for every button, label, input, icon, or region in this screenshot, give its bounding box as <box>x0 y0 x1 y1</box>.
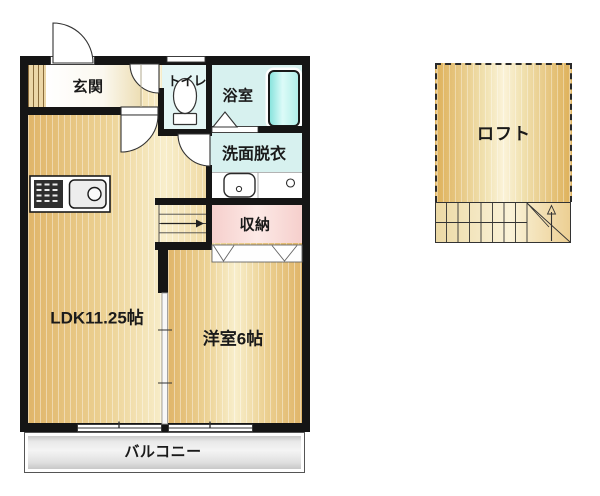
shoe-cabinet <box>28 65 46 107</box>
wall-bottom <box>20 423 310 432</box>
wall-genkan <box>28 107 121 115</box>
wall-room-divider <box>158 242 168 293</box>
wall-toilet-bottom <box>158 129 206 136</box>
floor-plan: 玄関 トイレ 浴室 洗面脱衣 収納 LDK11.25帖 洋室6帖 バルコニー ロ… <box>0 0 600 496</box>
wall-bath-bottom <box>212 126 302 133</box>
room-label-loft: ロフト <box>477 120 531 145</box>
room-label-storage: 収納 <box>239 214 270 235</box>
room-label-genkan: 玄関 <box>72 76 103 97</box>
wall-middle <box>155 198 302 205</box>
bathtub <box>268 70 300 127</box>
room-label-western-room: 洋室6帖 <box>203 325 263 350</box>
room-label-ldk: LDK11.25帖 <box>50 304 144 329</box>
loft-staircase-area <box>435 202 571 243</box>
wall-left <box>20 56 28 432</box>
room-label-balcony: バルコニー <box>124 441 201 462</box>
room-label-bathroom: 浴室 <box>222 85 253 106</box>
wall-top <box>20 56 310 65</box>
room-label-washroom: 洗面脱衣 <box>222 140 286 164</box>
washroom-counter <box>212 172 302 198</box>
wall-right <box>302 56 310 432</box>
room-label-toilet: トイレ <box>167 71 206 90</box>
